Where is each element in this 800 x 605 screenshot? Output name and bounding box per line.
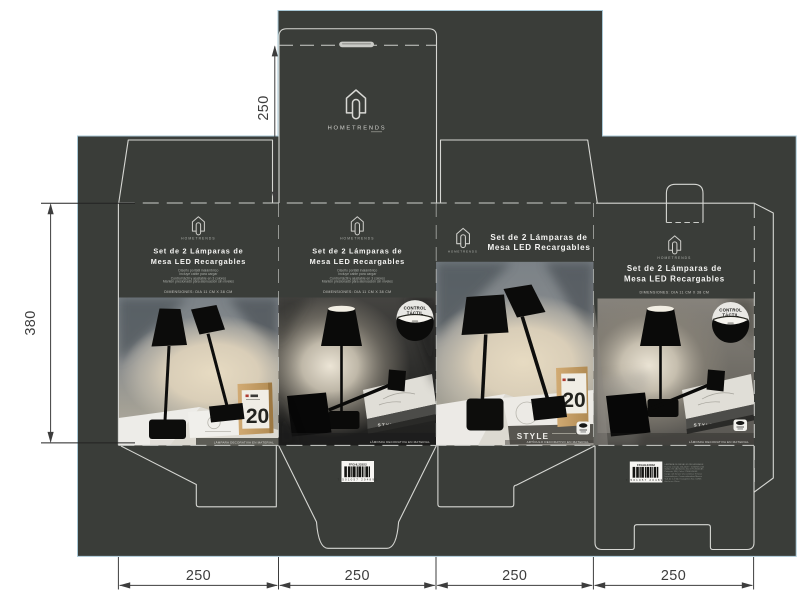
svg-text:Set de 2 Lámparas de: Set de 2 Lámparas de (312, 247, 402, 256)
svg-text:Incluye cable para cargar: Incluye cable para cargar (338, 272, 377, 276)
svg-text:Set de 2 Lámparas de: Set de 2 Lámparas de (153, 247, 243, 256)
svg-text:TÁCTIL: TÁCTIL (722, 312, 739, 317)
svg-text:HOMETRENDS: HOMETRENDS (448, 250, 478, 254)
svg-text:Set de 2 Lámparas de: Set de 2 Lámparas de (490, 233, 587, 242)
svg-text:Mesa LED Recargables: Mesa LED Recargables (151, 257, 246, 266)
svg-text:TÁCTIL: TÁCTIL (407, 310, 424, 315)
svg-text:DIMENSIONES: DIA 11 CM X 38 C: DIMENSIONES: DIA 11 CM X 38 CM (640, 290, 710, 294)
svg-text:FFGHL233S2: FFGHL233S2 (349, 462, 367, 466)
svg-text:ARTÍCULO DECORATIVO EN MATERIA: ARTÍCULO DECORATIVO EN MATERIAL (527, 440, 590, 444)
svg-text:Incluye cable para cargar: Incluye cable para cargar (179, 272, 218, 276)
svg-text:250: 250 (661, 568, 686, 584)
svg-text:Mesa LED Recargables: Mesa LED Recargables (487, 243, 590, 252)
svg-text:Hecho en China: Hecho en China (665, 481, 681, 483)
svg-text:7 501057 204891: 7 501057 204891 (337, 477, 378, 481)
svg-text:Mesa LED Recargables: Mesa LED Recargables (310, 257, 405, 266)
svg-text:FFGHL233S2: FFGHL233S2 (637, 463, 655, 467)
svg-text:LÁMPARA DECORATIVA EN MATERIAL: LÁMPARA DECORATIVA EN MATERIAL (689, 440, 749, 444)
svg-text:250: 250 (345, 568, 370, 584)
svg-text:380: 380 (23, 310, 39, 335)
svg-text:20: 20 (562, 389, 585, 412)
svg-text:Mesa LED Recargables: Mesa LED Recargables (624, 275, 725, 284)
svg-text:HOMETRENDS: HOMETRENDS (181, 237, 215, 241)
svg-text:Set de 2 Lámparas de: Set de 2 Lámparas de (627, 264, 722, 273)
svg-text:250: 250 (186, 568, 211, 584)
svg-text:HOMETRENDS: HOMETRENDS (657, 256, 691, 260)
svg-text:Mantén presionado para atenuac: Mantén presionado para atenuación sin ni… (163, 280, 234, 284)
svg-text:250: 250 (256, 95, 272, 120)
svg-text:DIMENSIONES: DIA 11 CM X 38 C: DIMENSIONES: DIA 11 CM X 38 CM (164, 290, 232, 294)
svg-text:7 501057 204891: 7 501057 204891 (626, 478, 667, 482)
svg-text:HOMETRENDS: HOMETRENDS (340, 237, 374, 241)
svg-text:250: 250 (502, 568, 527, 584)
svg-text:LÁMPARA DECORATIVA EN MATERIAL: LÁMPARA DECORATIVA EN MATERIAL (370, 440, 430, 444)
svg-text:LÁMPARA DECORATIVA EN MATERIAL: LÁMPARA DECORATIVA EN MATERIAL (214, 440, 274, 444)
svg-text:DIMENSIONES: DIA 11 CM X 38 C: DIMENSIONES: DIA 11 CM X 38 CM (323, 290, 391, 294)
svg-text:HOMETRENDS: HOMETRENDS (328, 126, 387, 132)
svg-text:Mantén presionado para atenuac: Mantén presionado para atenuación sin ni… (322, 280, 393, 284)
svg-text:20: 20 (246, 405, 269, 428)
